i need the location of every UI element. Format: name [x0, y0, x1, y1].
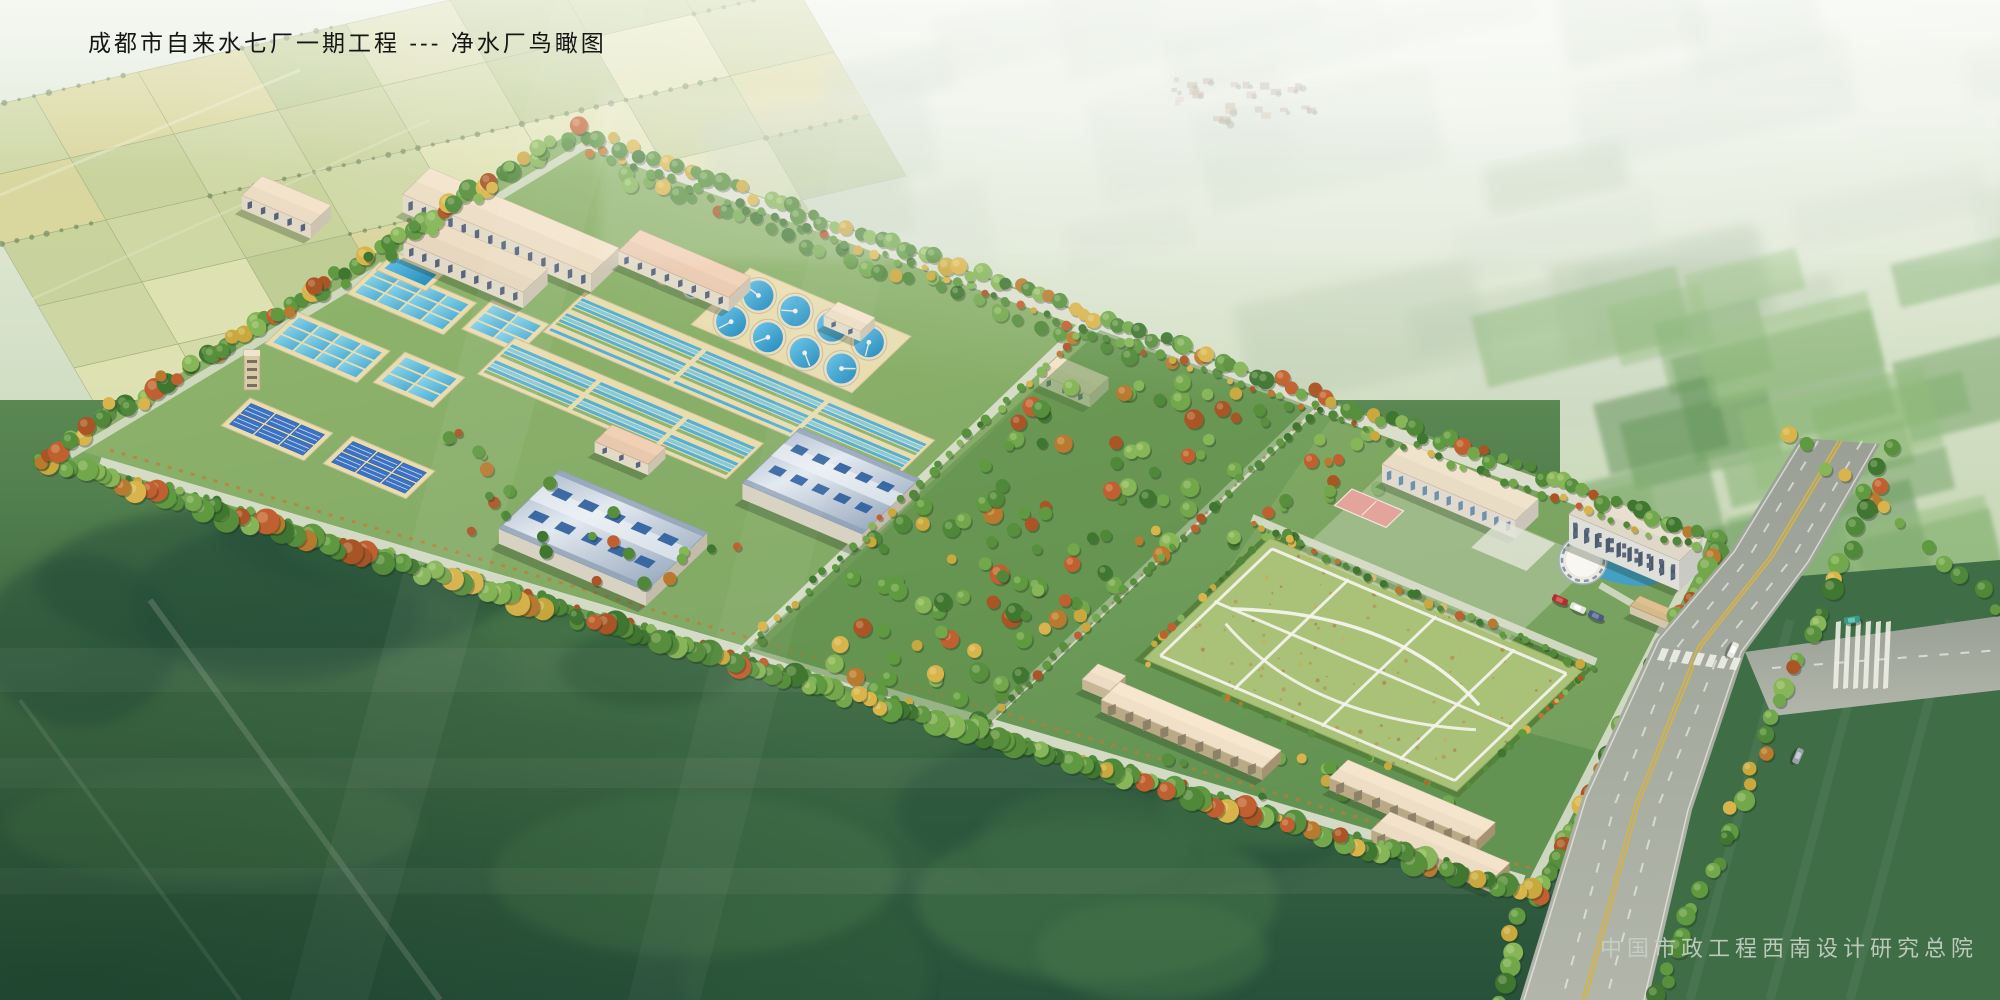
- title-text: 成都市自来水七厂一期工程 --- 净水厂鸟瞰图: [88, 32, 607, 55]
- rendered-scene: [0, 0, 2000, 1000]
- credit-text: 中国市政工程西南设计研究总院: [1600, 938, 1978, 960]
- aerial-rendering-canvas: 成都市自来水七厂一期工程 --- 净水厂鸟瞰图 中国市政工程西南设计研究总院: [0, 0, 2000, 1000]
